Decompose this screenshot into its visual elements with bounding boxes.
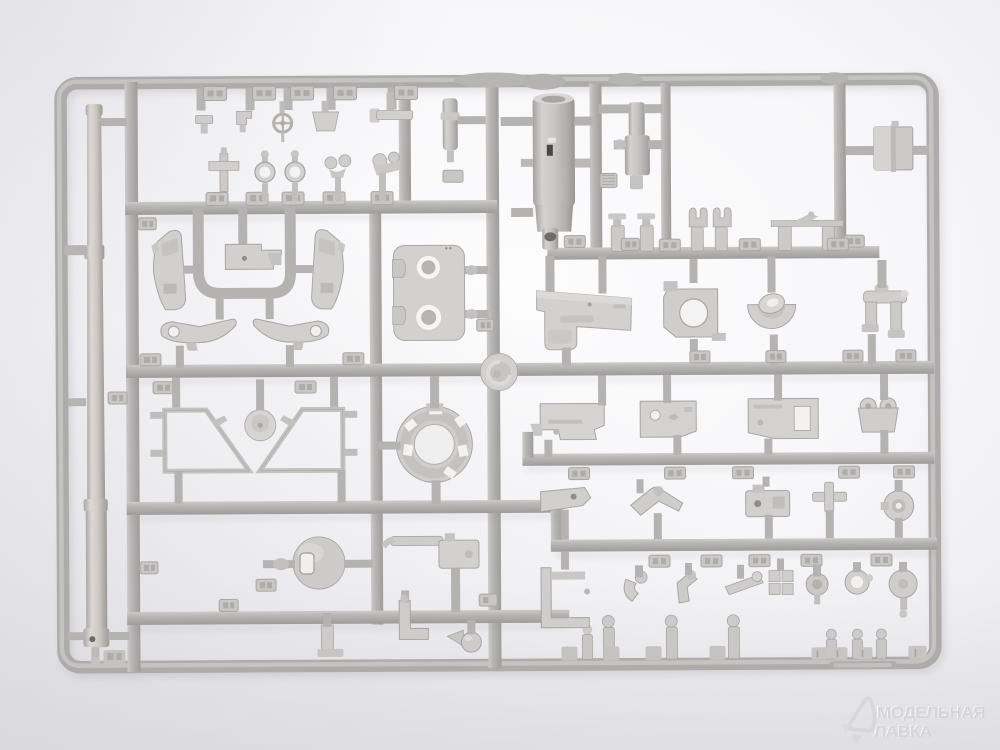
svg-text:ЛАВКА: ЛАВКА <box>874 722 932 741</box>
svg-text:МОДЕЛЬНАЯ: МОДЕЛЬНАЯ <box>877 703 985 722</box>
